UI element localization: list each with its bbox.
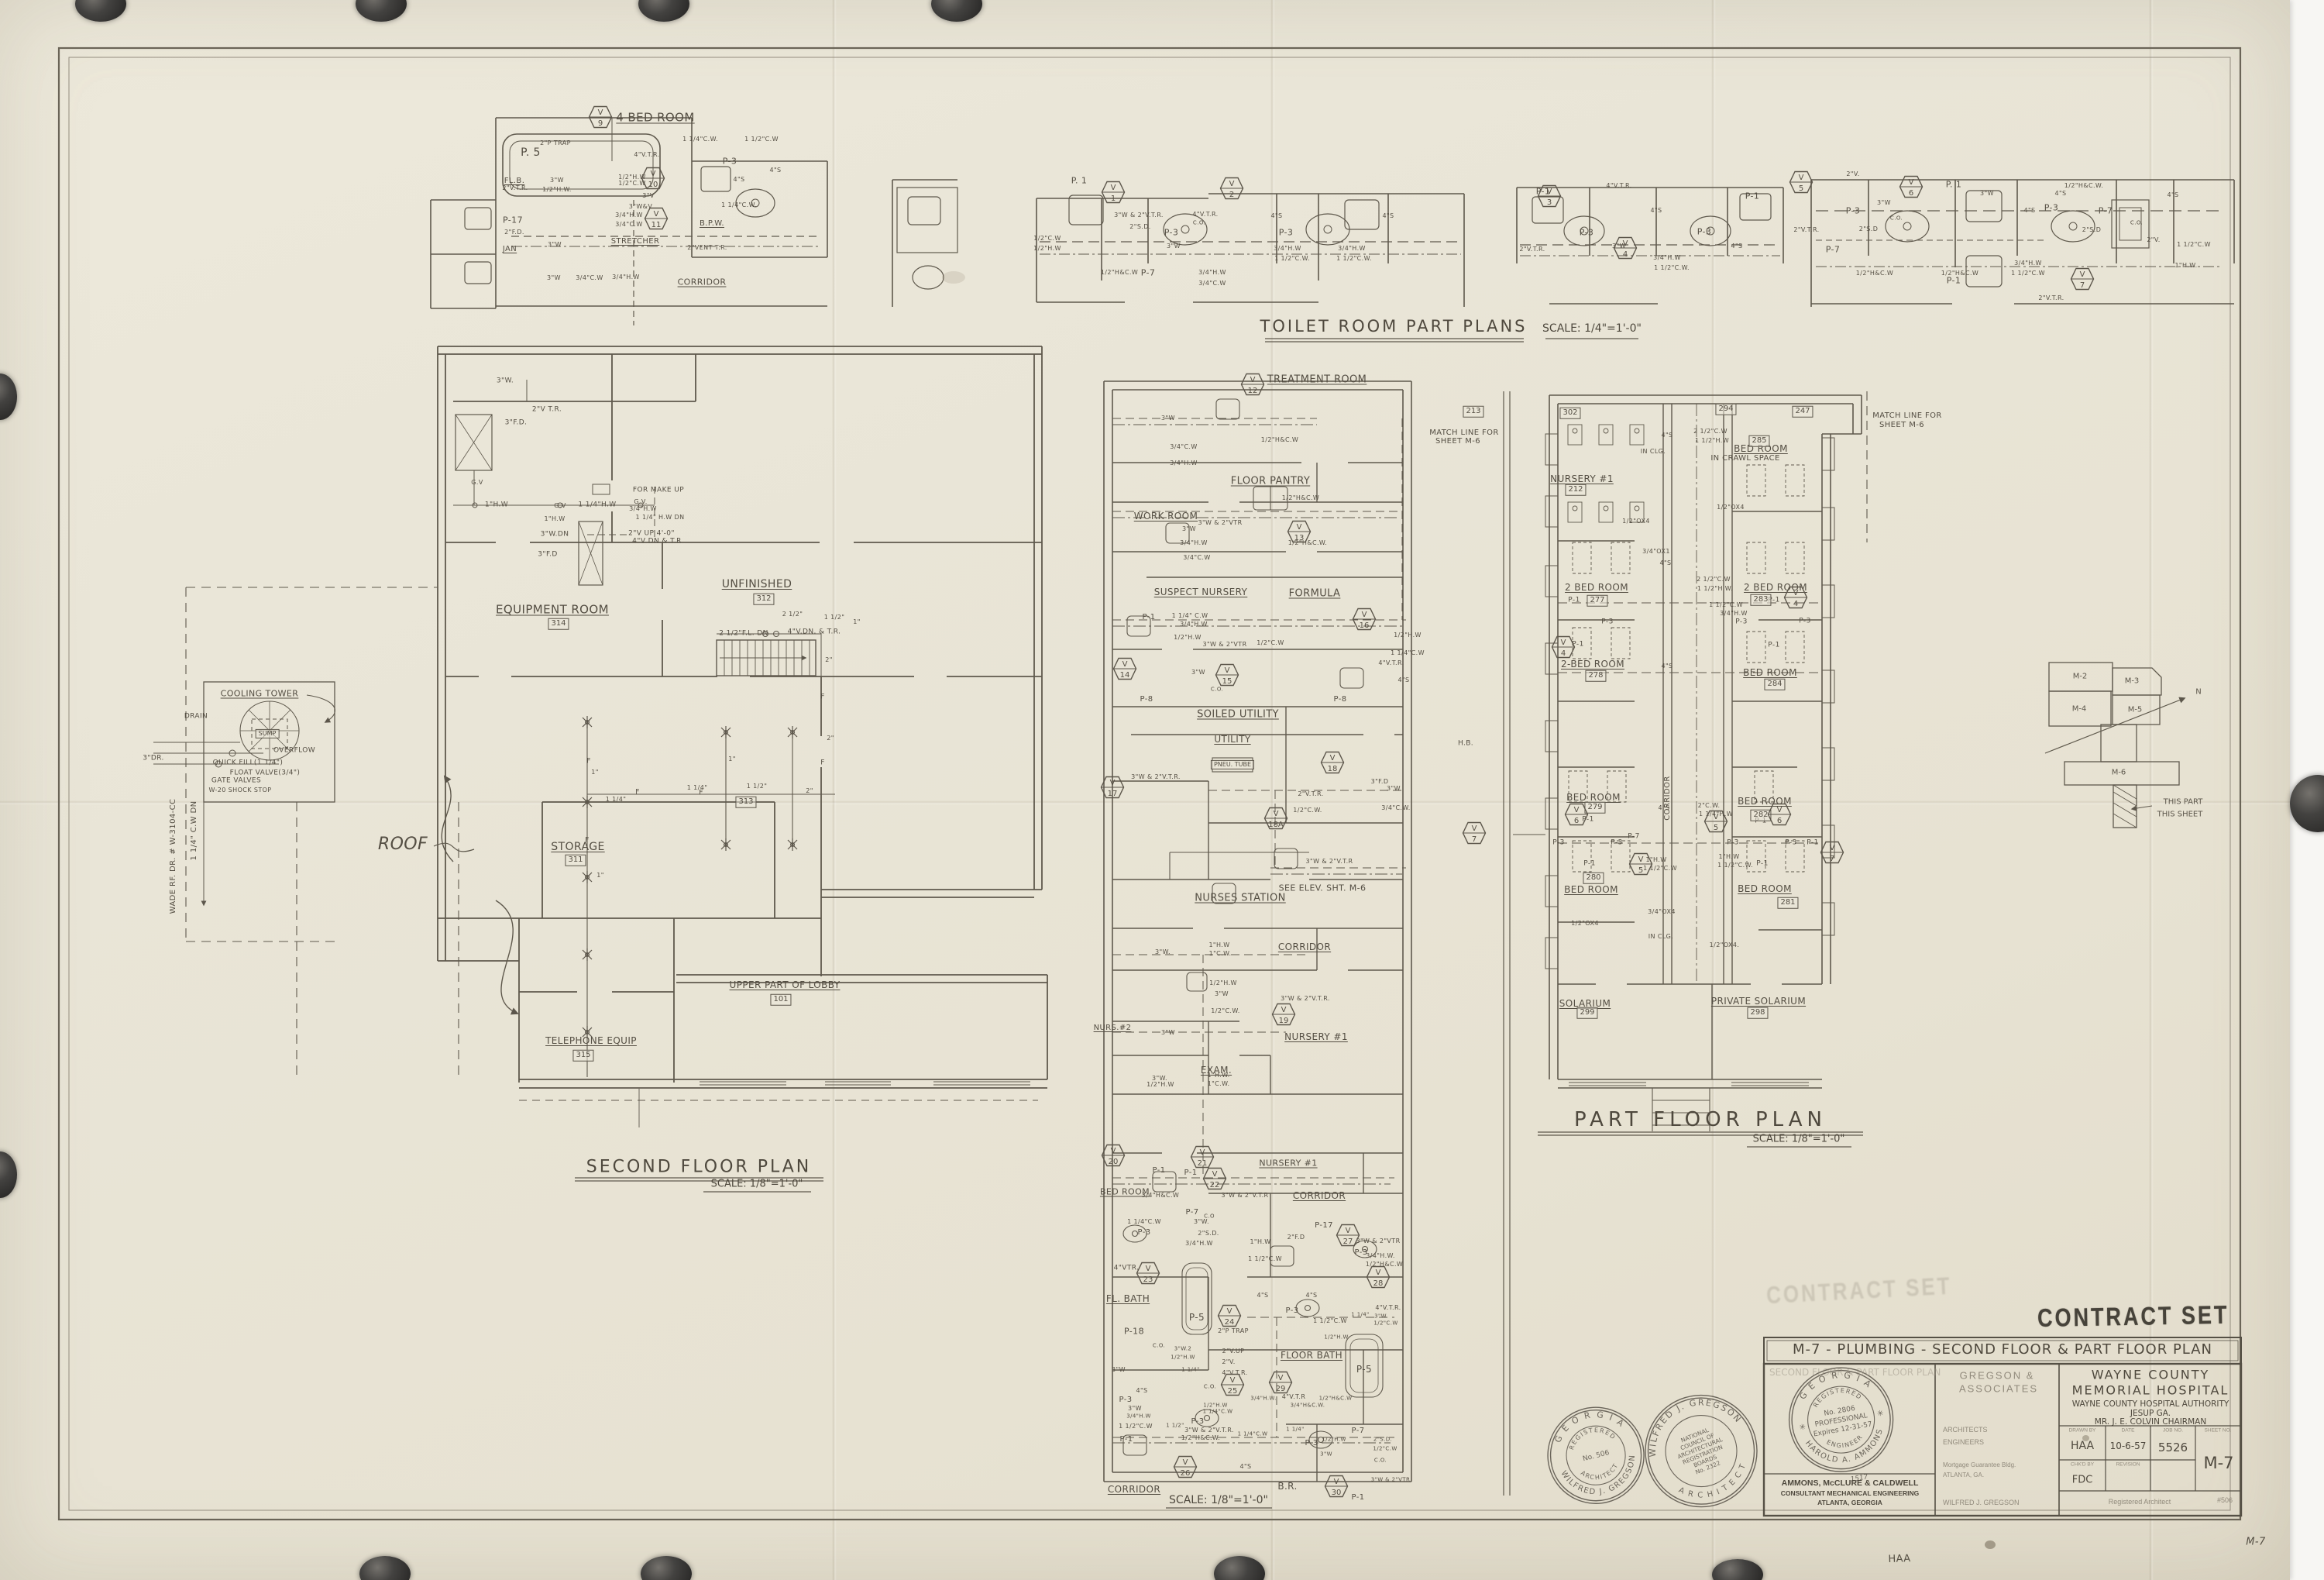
valve-symbol: V29 [1268, 1371, 1293, 1397]
plan-label: P-1 [1583, 861, 1595, 868]
plan-label: 1 1/2"C.W [2011, 270, 2045, 277]
plan-label: 2" [825, 657, 833, 663]
plan-label: 1 1/4" [1181, 1368, 1200, 1373]
plan-label: WORK ROOM [1134, 511, 1198, 521]
room-number: 312 [753, 594, 774, 605]
plan-label: 2"S.D. [1198, 1231, 1219, 1237]
drawn-by-label: DRAWN BY [2069, 1428, 2096, 1434]
valve-symbol: V6 [1564, 803, 1589, 829]
valve-symbol: V4 [1613, 236, 1638, 263]
plan-label: JAN [503, 246, 517, 253]
plan-label: 1 1/4" C.W [1172, 613, 1208, 619]
plan-label: 3"W [1161, 415, 1175, 422]
plan-label: C.O. [1374, 1458, 1387, 1464]
svg-text:V: V [1830, 844, 1835, 852]
plan-label: 2 1/2"C.W [1693, 429, 1728, 435]
plan-label: 2" [806, 788, 813, 794]
svg-text:7: 7 [2080, 281, 2085, 290]
plan-label: 2"VENT T.R. [687, 245, 727, 251]
valve-symbol: V4 [1551, 635, 1576, 662]
plan-label: 1 1/2" [1166, 1423, 1184, 1429]
svg-text:✳: ✳ [1876, 1410, 1884, 1419]
svg-text:1: 1 [1111, 194, 1116, 203]
plan-label: FLOOR PANTRY [1231, 477, 1310, 487]
svg-text:20: 20 [1109, 1158, 1119, 1166]
plan-label: P-3 [1785, 840, 1796, 847]
plan-label: 3/4"C.W [1170, 444, 1197, 450]
plan-label: 3"F.D. [505, 420, 528, 427]
room-number: 281 [1777, 897, 1798, 909]
plan-label: B.R. [1277, 1482, 1297, 1491]
valve-symbol: V9 [588, 105, 613, 132]
plan-label: 3/4"H.W [1338, 246, 1366, 252]
valve-symbol: V18A [1260, 807, 1291, 833]
plan-label: 3"W [548, 242, 562, 248]
svg-text:✳: ✳ [1799, 1423, 1807, 1432]
svg-text:V: V [1212, 1170, 1218, 1179]
plan-label: 4"S [1661, 663, 1673, 670]
valve-symbol: V22 [1202, 1167, 1227, 1193]
plan-label: 1 1/2"C.W [2177, 242, 2211, 248]
principal-name: WILFRED J. GREGSON [1943, 1499, 2020, 1506]
plan-label: 2"V.T.R. [1298, 791, 1323, 797]
plan-label: 1"H.W [1718, 854, 1739, 860]
plan-label: P-1 [1745, 192, 1760, 201]
plan-label: 1"H.W [544, 516, 565, 522]
valve-symbol: V28 [1366, 1265, 1391, 1292]
plan-label: 4 BED ROOM [616, 112, 694, 124]
plan-label: 2"V. [1222, 1359, 1235, 1365]
plan-label: P-7 [1352, 1427, 1365, 1435]
plan-label: 1/2"H.W [1203, 1403, 1228, 1409]
valve-symbol: V5 [1703, 810, 1728, 836]
plan-label: 4"S [2054, 191, 2066, 197]
plan-label: P-1 [1568, 597, 1580, 604]
svg-text:5: 5 [1714, 824, 1718, 832]
svg-text:V: V [1777, 806, 1783, 814]
svg-text:25: 25 [1228, 1387, 1238, 1396]
plan-label: P-7 [2099, 207, 2113, 215]
svg-text:V: V [1111, 1147, 1116, 1155]
plan-label: C.O. [1890, 216, 1903, 222]
plan-label: 1 1/4" [606, 797, 627, 803]
plan-label: 4"S [1270, 213, 1282, 219]
principal-number: #506 [2217, 1496, 2233, 1504]
paper-stain [2082, 1435, 2089, 1441]
svg-text:V: V [598, 108, 603, 117]
firm-role-2: ENGINEERS [1943, 1438, 1984, 1446]
plan-label: 2"V.UP [1222, 1348, 1245, 1355]
key-plan-label: M-5 [2128, 706, 2143, 714]
plan-label: P-3 [1611, 840, 1622, 847]
svg-text:4: 4 [1793, 600, 1798, 608]
plan-label: 1/2"H.W [1033, 246, 1061, 252]
engineer-city: ATLANTA, GEORGIA [1817, 1499, 1882, 1506]
plan-label: 3/4"H.W [615, 212, 643, 219]
valve-symbol: V17 [1100, 776, 1125, 802]
svg-text:9: 9 [598, 119, 603, 128]
plan-label: P-8 [1334, 696, 1347, 704]
plan-label: 3"W.2 [1174, 1347, 1191, 1352]
plan-label: 1/2"C.W [1373, 1447, 1397, 1452]
plan-label: 1/2"C.W [1373, 1321, 1397, 1327]
plan-label: 1" [596, 873, 604, 879]
plan-label: SEE ELEV. SHT. M-6 [1279, 884, 1367, 893]
firm-role-1: ARCHITECTS [1943, 1426, 1988, 1434]
plan-label: 3/4"OX4 [1648, 909, 1676, 915]
plan-label: P-3 [1580, 229, 1594, 237]
room-number: 247 [1792, 406, 1813, 418]
plan-label: 1 1/2"C.W. [1717, 862, 1753, 869]
room-number: 313 [735, 797, 756, 808]
svg-text:6: 6 [1909, 189, 1913, 198]
svg-text:11: 11 [651, 221, 662, 229]
svg-text:4: 4 [1623, 250, 1628, 259]
svg-text:18A: 18A [1268, 821, 1284, 829]
plan-label: NURSERY #1 [1259, 1159, 1317, 1168]
plan-label: 1/2"H&C.W [1282, 495, 1319, 501]
plan-label: 2"S.D [1859, 226, 1879, 232]
plan-label: 2"F.D. [504, 229, 524, 236]
plan-label: 3/4"H.W [1170, 460, 1198, 466]
plan-label: 2"S.D. [1129, 224, 1151, 230]
plan-label: F [635, 790, 640, 797]
svg-text:V: V [1110, 779, 1116, 787]
plan-label: CORRIDOR [678, 278, 727, 287]
plan-label: 1/2"C.W [1033, 236, 1061, 242]
room-number: 302 [1559, 408, 1580, 419]
plan-label: 1"H.W. [1207, 1072, 1229, 1079]
plan-label: BED ROOM [1564, 885, 1618, 894]
plan-label: 3/4"H&C.W. [1291, 1403, 1325, 1409]
plan-label: 1"C.W. [1209, 951, 1232, 957]
svg-text:No. 506: No. 506 [1582, 1449, 1611, 1463]
plan-label: NURSES STATION [1195, 893, 1286, 904]
plan-label: UTILITY [1214, 735, 1250, 744]
plan-label: P-1 [1120, 1436, 1133, 1444]
plan-label: 1 1/2"C.W. [1336, 256, 1372, 262]
plan-label: 3"W [1980, 191, 1994, 197]
plan-label: P-1 [1143, 614, 1156, 621]
plan-label: PRIVATE SOLARIUM [1711, 997, 1806, 1006]
plan-label: P-5 [1356, 1365, 1372, 1374]
plan-label: 3"W [1320, 1452, 1332, 1458]
plan-label: C.O. [1193, 221, 1205, 226]
plan-label: 3"W & 2"V.T.R. [1281, 996, 1330, 1002]
firm-addr-1: Mortgage Guarantee Bldg. [1943, 1461, 2016, 1468]
plan-label: 1/2"OX4 [1717, 504, 1745, 511]
svg-text:V: V [1278, 1374, 1284, 1382]
plan-label: 2"P TRAP [540, 140, 571, 146]
plan-label: SOILED UTILITY [1197, 710, 1279, 720]
date-label: DATE [2122, 1428, 2135, 1434]
plan-label: F [586, 759, 591, 766]
svg-text:30: 30 [1332, 1489, 1342, 1497]
key-plan-label: THIS SHEET [2157, 811, 2203, 819]
plan-label: 2"S.D. [1373, 1437, 1392, 1443]
revision-label: REVISION [2116, 1462, 2140, 1468]
plan-label: 3/4"H.W [1198, 270, 1226, 276]
plan-label: 3/4"C.W [1198, 281, 1226, 287]
plan-label: 1/2"C.W [1257, 640, 1284, 646]
plan-label: 1"H.W. [2174, 263, 2197, 269]
plan-label: NURS.#2 [1094, 1024, 1132, 1032]
principal-title: Registered Architect [2109, 1498, 2171, 1506]
plan-label: P. 5 [521, 147, 541, 158]
plan-label: 2"C.W. [1698, 803, 1721, 809]
plan-label: 4"V DN & T.R [632, 539, 682, 546]
plan-label: P-1 [1768, 642, 1779, 649]
plan-label: 3"W [1112, 1367, 1126, 1373]
plan-label: 3"W [1374, 1314, 1387, 1320]
plan-label: P. 1 [1946, 181, 1962, 189]
plan-label: 1/2"H.W [1394, 632, 1422, 639]
svg-text:V: V [2080, 270, 2085, 279]
svg-text:14: 14 [1120, 671, 1130, 680]
valve-symbol: V7 [1462, 821, 1487, 848]
plan-label: 1"H.W [1250, 1239, 1270, 1245]
plan-label: 1 1/4"C.W [1127, 1219, 1161, 1225]
plan-label: NURSERY #1 [1550, 474, 1614, 484]
paper-stain [942, 271, 965, 284]
plan-label: 3/4"H.W [1180, 621, 1208, 628]
plan-label: 3"W [547, 275, 561, 281]
plan-label: 1/2"H.W [1322, 1437, 1346, 1443]
plan-label: F [820, 694, 825, 701]
room-number: 284 [1764, 679, 1785, 690]
key-plan-label: M-4 [2072, 705, 2087, 714]
plan-label: 2"V.T.R. [2038, 295, 2064, 301]
valve-symbol: V4 [1783, 586, 1808, 612]
plan-label: 1 1/2"H.W. [1697, 586, 1733, 592]
valve-symbol: V7 [2070, 267, 2095, 294]
plan-label: 1" [853, 619, 861, 625]
valve-symbol: V15 [1215, 663, 1239, 690]
job-no-label: JOB NO. [2163, 1428, 2183, 1434]
plan-label: 2 BED ROOM [1565, 583, 1628, 592]
svg-text:2: 2 [1229, 191, 1234, 199]
plan-label: CORRIDOR [1278, 942, 1331, 952]
key-plan-label: M-3 [2125, 677, 2140, 686]
plan-label: P-3 [1727, 840, 1738, 847]
valve-symbol: V23 [1136, 1262, 1160, 1288]
plan-label: P-7 [1826, 246, 1841, 254]
sheet-no-value: M-7 [2203, 1454, 2233, 1472]
plan-label: 4"V.T.R. [1375, 1305, 1401, 1311]
plan-label: 4"S [2167, 192, 2178, 198]
valve-symbol: V19 [1271, 1003, 1296, 1029]
plan-label: 1 1/4" C.W DN [191, 800, 198, 860]
plan-label: BED ROOM [1566, 793, 1621, 802]
plan-label: 1" [728, 756, 736, 762]
plan-label: DRAIN [184, 714, 208, 721]
svg-text:V: V [1334, 1478, 1339, 1486]
plan-label: 3/4"H.W [612, 274, 640, 281]
plan-label: SHEET M-6 [1879, 422, 1924, 429]
plan-label: 1 1/2"C.W. [1274, 256, 1310, 262]
svg-text:V: V [1200, 1148, 1205, 1157]
plan-label: FLOAT VALVE(3/4") [230, 770, 301, 777]
room-number: 213 [1463, 406, 1483, 418]
valve-symbol: V24 [1217, 1304, 1242, 1330]
valve-symbol: V25 [1220, 1373, 1245, 1399]
plan-label: P-1 [1153, 1167, 1166, 1175]
svg-text:V: V [1547, 188, 1552, 196]
svg-text:6: 6 [1777, 817, 1782, 825]
plan-label: 2 1/2"F.L. DN [719, 631, 768, 638]
drawn-by-value: HAA [2071, 1440, 2094, 1452]
plan-label: 1/2"C.W. [1293, 807, 1322, 814]
firm-name-1: GREGSON & [1960, 1370, 2035, 1382]
svg-text:V: V [1281, 1006, 1287, 1014]
room-number: 277 [1587, 595, 1607, 607]
plan-label: 1 1/2"C.W [1248, 1256, 1282, 1262]
room-number: PNEU. TUBE [1211, 760, 1254, 769]
plan-label: P-7 [1628, 834, 1639, 841]
plan-label: 1 1/4" [687, 785, 708, 791]
plan-label: IN CLG. [1648, 934, 1673, 940]
plan-label: 3/4"H.W [1126, 1414, 1151, 1420]
valve-symbol: V26 [1173, 1455, 1198, 1482]
engineer-firm: AMMONS, McCLURE & CALDWELL [1782, 1478, 1919, 1488]
plan-label: 2"V. [2147, 237, 2160, 243]
plan-label: 1 1/2"C.W [1119, 1423, 1153, 1430]
plan-label: P-8 [1140, 696, 1153, 704]
plan-label: 2" [827, 735, 834, 742]
sheet-no-label: SHEET NO. [2205, 1428, 2232, 1434]
plan-label: 1/2"H.W [1324, 1335, 1349, 1341]
plan-label: 1/2"H&C.W [1319, 1396, 1353, 1402]
plan-label: P-5 [1189, 1313, 1205, 1322]
project-line-1: WAYNE COUNTY [2092, 1368, 2210, 1382]
plan-label: P-3 [1119, 1396, 1133, 1404]
plan-label: 1/2"OX4. [1710, 942, 1740, 948]
valve-symbol: V1 [1101, 181, 1126, 207]
plan-label: 4"V.T.R. [1192, 212, 1218, 218]
plan-label: 3"W & 2"V.T.R [1306, 859, 1353, 865]
plan-label: 1"H.W [485, 502, 508, 509]
firm-addr-2: ATLANTA, GA. [1943, 1472, 1984, 1478]
plan-label: 1 1/4"C.W [1238, 1432, 1268, 1437]
firm-name-2: ASSOCIATES [1959, 1383, 2038, 1395]
plan-label: 3"DR. [143, 756, 164, 762]
plan-label: 4"V.T.R. [1606, 183, 1631, 189]
plan-label: 3"W [550, 177, 564, 184]
plan-label: 4"S [1397, 677, 1409, 683]
plan-label: 3"F.D [1371, 779, 1389, 785]
plan-label: 4"V.T.R. [1378, 660, 1404, 666]
plan-label: 3"W [1167, 243, 1181, 250]
plan-label: 3/4"H.W [1653, 255, 1681, 261]
svg-text:23: 23 [1143, 1275, 1153, 1284]
svg-text:5: 5 [1638, 866, 1643, 875]
plan-label: COOLING TOWER [221, 690, 299, 698]
plan-label: 2"V T.R. [532, 407, 562, 414]
plan-label: FLOOR BATH [1281, 1351, 1342, 1360]
svg-text:10: 10 [648, 181, 658, 189]
svg-text:19: 19 [1279, 1017, 1289, 1025]
plan-label: 3"W & 2"VTR [1198, 520, 1242, 526]
svg-text:12: 12 [1248, 387, 1258, 395]
plan-label: STRETCHER [611, 238, 660, 246]
plan-label: STORAGE [551, 842, 604, 852]
plan-label: OVERFLOW [273, 748, 315, 755]
plan-label: 3"W & 2"V.T.R [1222, 1193, 1269, 1199]
chkd-by-value: FDC [2072, 1475, 2093, 1486]
plan-label: 1/2"OX4 [1571, 921, 1599, 927]
svg-text:17: 17 [1108, 790, 1118, 798]
plan-label: 4"S [1659, 560, 1671, 566]
plan-label: 1/2"H.W [1147, 1082, 1174, 1088]
plan-label: 3/4"OX1 [1642, 549, 1670, 555]
plan-label: FOR MAKE UP [633, 487, 684, 494]
plan-label: NURSERY #1 [1284, 1032, 1348, 1041]
plan-label: 1"H.W [1208, 942, 1229, 948]
plan-label: 3/4"H.W [1185, 1241, 1213, 1247]
plan-label: ROOF [378, 836, 428, 853]
plan-label: 1 1/4"C.W. [721, 202, 757, 208]
svg-text:28: 28 [1373, 1279, 1384, 1288]
project-line-5: MR. J. E. COLVIN CHAIRMAN [2095, 1417, 2206, 1427]
plan-label: G.V. [634, 499, 647, 505]
sheet-title-strip: M-7 - PLUMBING - SECOND FLOOR & PART FLO… [1769, 1341, 2236, 1358]
plan-label: 1/2"H&C.W. [1181, 1435, 1220, 1441]
plan-label: 3/4"C.W [615, 222, 642, 228]
plan-label: P-3 [1286, 1307, 1299, 1315]
plan-label: 1/2"H.W. [542, 187, 572, 193]
room-number: 314 [548, 618, 569, 630]
plan-label: 3"W [1387, 786, 1401, 792]
plan-label: 4"S [733, 177, 744, 183]
room-number: 299 [1576, 1007, 1597, 1019]
room-number: 315 [572, 1050, 593, 1062]
plan-label: C.O. [1153, 1344, 1165, 1349]
plan-label: 4"S [1257, 1293, 1268, 1299]
plan-label: P-3 [1735, 619, 1747, 626]
room-number: 311 [565, 855, 586, 866]
room-number: 283 [1750, 594, 1771, 606]
plan-label: CORRIDOR [1108, 1485, 1160, 1494]
valve-symbol: V12 [1240, 373, 1265, 399]
plan-label: 1"C.W. [1208, 1081, 1230, 1087]
svg-text:V: V [1227, 1307, 1232, 1316]
valve-symbol: V13 [1287, 520, 1312, 546]
plan-label: 1 1/2" [747, 783, 768, 790]
plan-label: 4"V.DN. & T.R. [788, 629, 841, 636]
plan-label: 1 1/2"C.W [744, 136, 779, 143]
key-plan-label: M-6 [2112, 769, 2126, 777]
plan-label: GATE VALVES [211, 778, 261, 785]
svg-text:22: 22 [1210, 1181, 1220, 1189]
svg-text:27: 27 [1343, 1237, 1353, 1246]
plan-label: 3"W [1161, 1030, 1175, 1036]
svg-text:V: V [1230, 1376, 1236, 1385]
plan-label: 3"W.DN [541, 532, 569, 539]
plan-label: IN CLG. [1641, 449, 1666, 455]
plan-label: G.V [554, 503, 566, 509]
svg-text:V: V [1146, 1265, 1151, 1273]
plan-label: 3"W. [1155, 949, 1171, 955]
plan-label: MATCH LINE FOR [1872, 412, 1942, 420]
plan-label: 3"W & 2"V.T.R. [1114, 212, 1164, 219]
plan-label: 1 1/2"H.W [1695, 438, 1729, 444]
plan-label: FORMULA [1289, 589, 1341, 599]
engineer-role: CONSULTANT MECHANICAL ENGINEERING [1781, 1489, 1920, 1497]
svg-text:5: 5 [1799, 184, 1803, 193]
plan-label: 1/2"H&C.W [1856, 270, 1893, 277]
svg-text:V: V [1250, 376, 1256, 384]
svg-text:V: V [1376, 1268, 1381, 1277]
